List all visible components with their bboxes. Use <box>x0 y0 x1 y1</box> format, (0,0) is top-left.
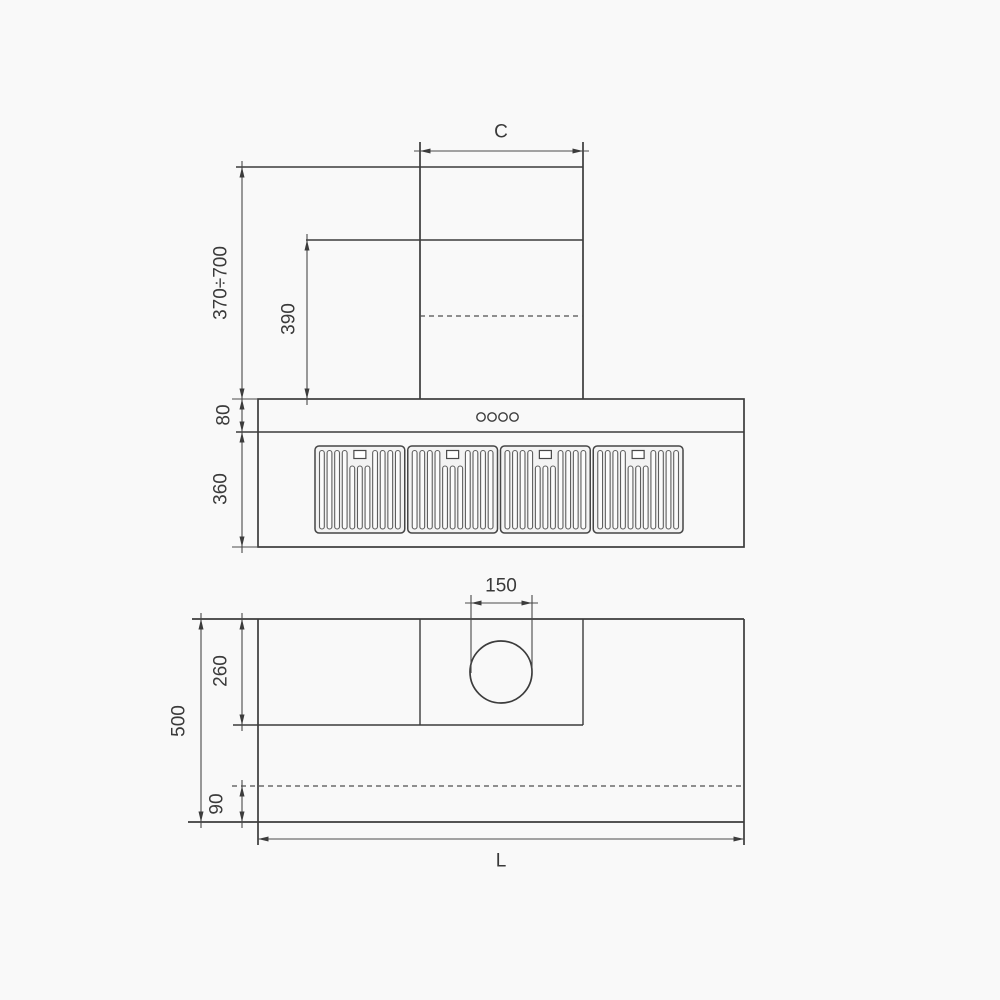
filter-slat <box>388 451 393 530</box>
filter-slat <box>395 451 400 530</box>
filter-slat <box>327 451 332 530</box>
dim-chimney-lower-section: 390 <box>279 234 307 405</box>
filter-slat <box>380 451 385 530</box>
front-view: C 370÷700 390 80 360 <box>211 122 744 553</box>
filter-slat <box>473 451 478 530</box>
filter-slat <box>450 466 455 529</box>
filter-slat <box>488 451 493 530</box>
filter-slat <box>566 451 571 530</box>
filter-slat <box>427 451 432 530</box>
filter-slat <box>659 451 664 530</box>
filter-slat <box>621 451 626 530</box>
filter-slat <box>581 451 586 530</box>
filter-panel <box>408 446 498 533</box>
control-button <box>499 413 507 421</box>
filter-slat <box>342 451 347 530</box>
filter-slat <box>636 466 641 529</box>
control-button <box>510 413 518 421</box>
filter-slat <box>505 451 510 530</box>
dim-label-500: 500 <box>169 705 190 737</box>
extension-line <box>471 595 532 673</box>
duct-hole-circle <box>470 641 532 703</box>
dim-label-90: 90 <box>207 793 228 814</box>
filter-slat <box>420 451 425 530</box>
dim-label-390: 390 <box>279 303 300 335</box>
filter-slat <box>558 451 563 530</box>
dim-label-l: L <box>496 851 507 872</box>
filter-slat <box>513 451 518 530</box>
dim-control-strip-height: 80 <box>214 399 242 432</box>
filter-slat <box>465 451 470 530</box>
dim-hood-height-range: 370÷700 <box>211 161 242 399</box>
filter-slat <box>458 466 463 529</box>
filter-slat <box>535 466 540 529</box>
filter-slat <box>651 451 656 530</box>
filter-slat <box>481 451 486 530</box>
filter-slat <box>528 451 533 530</box>
dim-filter-section-height: 360 <box>211 432 242 553</box>
filter-slat <box>643 466 648 529</box>
dim-label-370-700: 370÷700 <box>211 246 232 320</box>
filter-slat <box>357 466 362 529</box>
filter-slat <box>551 466 556 529</box>
control-button <box>488 413 496 421</box>
filter-panel <box>315 446 405 533</box>
filter-slat <box>365 466 370 529</box>
dim-duct-box-depth: 260 <box>211 613 242 731</box>
filter-handle <box>447 451 459 459</box>
filter-slat <box>674 451 679 530</box>
hood-body <box>232 399 744 547</box>
dim-label-c: C <box>494 122 508 143</box>
filter-slat <box>605 451 610 530</box>
filter-handle <box>354 451 366 459</box>
filter-panel <box>593 446 683 533</box>
plan-view: 150 260 500 90 L <box>169 576 744 872</box>
filter-panel <box>501 446 591 533</box>
dim-chimney-width: C <box>414 122 589 151</box>
plan-outline <box>188 619 744 845</box>
control-button <box>477 413 485 421</box>
technical-drawing-canvas: C 370÷700 390 80 360 <box>0 0 1000 1000</box>
filter-panels <box>315 446 683 533</box>
filter-slat <box>543 466 548 529</box>
range-hood-dimension-drawing: C 370÷700 390 80 360 <box>0 0 1000 1000</box>
filter-slat <box>613 451 618 530</box>
filter-slat <box>335 451 340 530</box>
dim-total-width: L <box>258 839 744 872</box>
dim-front-edge-offset: 90 <box>207 780 242 828</box>
filter-slat <box>598 451 603 530</box>
dim-label-150: 150 <box>485 576 517 597</box>
filter-slat <box>350 466 355 529</box>
dim-label-360: 360 <box>211 473 232 505</box>
filter-handle <box>539 451 551 459</box>
filter-slat <box>412 451 417 530</box>
filter-slat <box>320 451 325 530</box>
dim-label-260: 260 <box>211 655 232 687</box>
dim-duct-hole-diameter: 150 <box>465 576 538 673</box>
chimney-duct <box>236 142 583 399</box>
filter-slat <box>666 451 671 530</box>
filter-slat <box>435 451 440 530</box>
dim-total-depth: 500 <box>169 613 201 828</box>
control-buttons <box>477 413 518 421</box>
filter-slat <box>573 451 578 530</box>
filter-slat <box>520 451 525 530</box>
filter-handle <box>632 451 644 459</box>
filter-slat <box>443 466 448 529</box>
filter-slat <box>628 466 633 529</box>
filter-slat <box>373 451 378 530</box>
dim-label-80: 80 <box>214 404 235 425</box>
